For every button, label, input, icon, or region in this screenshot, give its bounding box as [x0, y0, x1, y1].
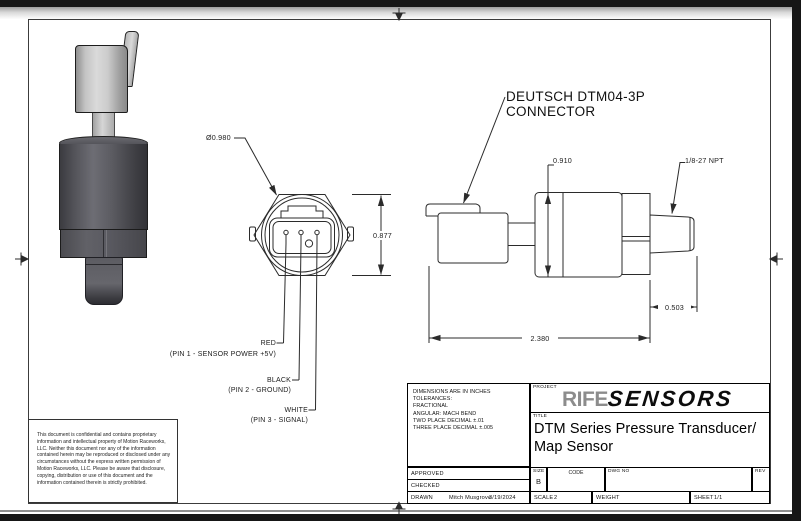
note-line: ANGULAR: MACH BEND [413, 411, 529, 418]
front-height-label: 0.877 [367, 231, 398, 240]
photo-thread-line [86, 264, 122, 265]
scale-cell: SCALE 2 [530, 491, 592, 504]
thread-spec-label: 1/8-27 NPT [685, 156, 724, 165]
size-value: B [531, 477, 546, 486]
photo-connector-body [75, 45, 128, 113]
drawing-title-line1: DTM Series Pressure Transducer/ [534, 420, 756, 438]
pin2-desc-label: (PIN 2 - GROUND) [210, 387, 291, 394]
checked-row: CHECKED [407, 479, 530, 492]
centering-mark-left [15, 253, 28, 266]
checked-label: CHECKED [411, 483, 440, 489]
rife-sensors-logo: RIFESENSORS [562, 386, 733, 412]
drawing-page: Ø0.980 0.877 DEUTSCH DTM04-3P CONNECTOR … [0, 0, 801, 521]
logo-sensors-text: SENSORS [606, 386, 734, 412]
code-cell: CODE [547, 467, 605, 492]
disclaimer-box: This document is confidential and contai… [28, 419, 178, 503]
diameter-label: Ø0.980 [206, 133, 231, 142]
weight-cell: WEIGHT [592, 491, 690, 504]
title-label: TITLE [533, 414, 547, 419]
drawn-by-value: Mitch Musgrove [449, 495, 491, 501]
body-height-label: 0.910 [553, 156, 572, 165]
dwg-no-label: DWG NO [608, 469, 629, 474]
connector-callout-line1: DEUTSCH DTM04-3P [506, 90, 645, 105]
disclaimer-text: This document is confidential and contai… [29, 420, 177, 486]
approved-label: APPROVED [411, 471, 444, 477]
thread-length-label: 0.503 [658, 303, 691, 312]
note-line: DIMENSIONS ARE IN INCHES [413, 389, 529, 396]
size-label: SIZE [533, 469, 544, 474]
project-cell: PROJECT RIFESENSORS [530, 383, 770, 413]
scale-label: SCALE [534, 495, 553, 501]
dwg-no-cell: DWG NO [605, 467, 752, 492]
note-line: FRACTIONAL [413, 403, 529, 410]
drawn-label: DRAWN [411, 495, 433, 501]
size-cell: SIZE B [530, 467, 547, 492]
right-bar [792, 0, 801, 521]
photo-hex-facet [103, 230, 107, 257]
connector-callout: DEUTSCH DTM04-3P CONNECTOR [506, 90, 645, 119]
logo-rife-text: RIFE [562, 388, 608, 411]
drawn-date-value: 3/19/2024 [489, 495, 516, 501]
photo-body [59, 144, 148, 230]
sheet-cell: SHEET 1/1 [690, 491, 770, 504]
connector-callout-line2: CONNECTOR [506, 105, 645, 120]
pin1-desc-label: (PIN 1 - SENSOR POWER +5V) [150, 351, 276, 358]
top-bar [0, 0, 801, 7]
overall-length-label: 2.380 [522, 334, 558, 343]
code-label: CODE [548, 470, 604, 476]
drawing-title-line2: Map Sensor [534, 438, 756, 456]
weight-label: WEIGHT [596, 495, 620, 501]
scale-value: 2 [554, 495, 557, 501]
note-line: TWO PLACE DECIMAL ±.01 [413, 418, 529, 425]
centering-mark-bottom [393, 503, 406, 515]
pin2-wire-label: BLACK [250, 377, 291, 384]
sheet-value: 1/1 [714, 495, 722, 501]
bottom-rule [0, 510, 792, 512]
rev-label: REV [755, 469, 765, 474]
drawn-row: DRAWN Mitch Musgrove 3/19/2024 [407, 491, 530, 504]
bottom-bar [0, 514, 792, 521]
note-line: TOLERANCES: [413, 396, 529, 403]
pin3-wire-label: WHITE [267, 407, 308, 414]
pin3-desc-label: (PIN 3 - SIGNAL) [227, 417, 308, 424]
project-label: PROJECT [533, 385, 557, 390]
approved-row: APPROVED [407, 467, 530, 480]
centering-mark-right [770, 253, 783, 266]
tolerance-cell: DIMENSIONS ARE IN INCHES TOLERANCES: FRA… [407, 383, 530, 467]
top-shadow [0, 7, 793, 19]
rev-cell: REV [752, 467, 770, 492]
sheet-label: SHEET [694, 495, 714, 501]
note-line: THREE PLACE DECIMAL ±.005 [413, 425, 529, 432]
pin1-wire-label: RED [240, 340, 276, 347]
title-cell: TITLE DTM Series Pressure Transducer/ Ma… [530, 412, 770, 468]
